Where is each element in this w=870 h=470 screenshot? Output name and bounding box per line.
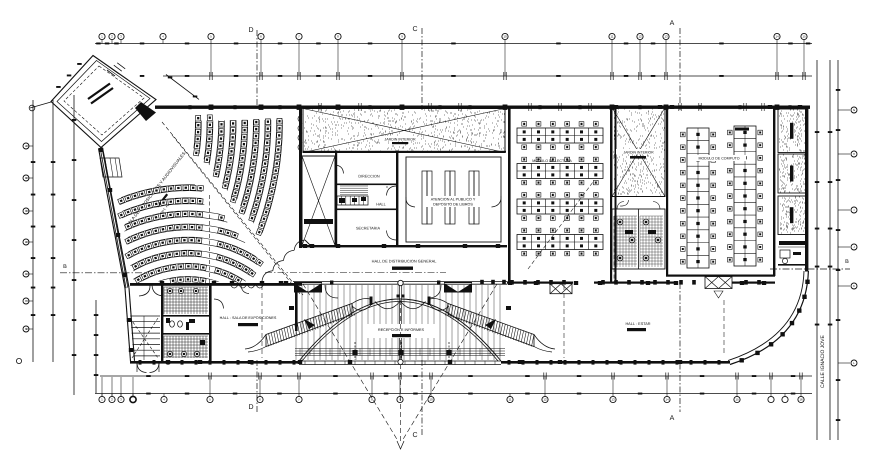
svg-text:JARDIN INTERIOR: JARDIN INTERIOR <box>384 138 416 142</box>
svg-text:16: 16 <box>799 398 803 402</box>
svg-text:A: A <box>25 144 27 148</box>
svg-text:DIRECCION: DIRECCION <box>358 175 380 179</box>
svg-text:11: 11 <box>610 35 613 39</box>
svg-text:RECEPCION E INFORMES: RECEPCION E INFORMES <box>378 328 424 332</box>
svg-text:14: 14 <box>665 398 669 402</box>
svg-text:DEPOSITO DE LIBROS: DEPOSITO DE LIBROS <box>433 203 473 207</box>
svg-text:HALL - ESTAR: HALL - ESTAR <box>625 322 650 326</box>
svg-text:D: D <box>248 27 253 34</box>
svg-text:HALL DE DISTRIBUCION GENERAL: HALL DE DISTRIBUCION GENERAL <box>372 259 438 264</box>
svg-text:CALLE IGNACIO JOVE: CALLE IGNACIO JOVE <box>820 335 826 388</box>
svg-text:C: C <box>412 432 417 439</box>
svg-text:15: 15 <box>735 398 739 402</box>
svg-text:13: 13 <box>611 398 615 402</box>
svg-text:B: B <box>25 176 27 180</box>
svg-text:ATENCION AL PUBLICO Y: ATENCION AL PUBLICO Y <box>431 198 476 202</box>
svg-text:14: 14 <box>775 35 779 39</box>
svg-text:K: K <box>853 284 855 288</box>
svg-text:HALL: HALL <box>376 203 386 207</box>
svg-text:10: 10 <box>503 35 507 39</box>
svg-text:15: 15 <box>802 35 806 39</box>
svg-text:12: 12 <box>638 35 642 39</box>
svg-text:12: 12 <box>543 398 547 402</box>
svg-text:MODULO DE LECTURA: MODULO DE LECTURA <box>532 159 572 163</box>
svg-text:HALL - SALA DE EXPOSICIONES: HALL - SALA DE EXPOSICIONES <box>220 316 277 320</box>
svg-text:A: A <box>670 415 675 422</box>
svg-text:C: C <box>412 26 417 33</box>
svg-text:D: D <box>248 404 253 411</box>
svg-text:H: H <box>853 152 855 156</box>
svg-text:JARDIN INTERIOR: JARDIN INTERIOR <box>623 151 654 155</box>
svg-text:E: E <box>25 272 27 276</box>
svg-text:11: 11 <box>508 398 511 402</box>
svg-text:SECRETARIA: SECRETARIA <box>356 227 380 231</box>
svg-text:A: A <box>670 20 675 27</box>
svg-text:10: 10 <box>429 398 433 402</box>
svg-text:13: 13 <box>664 35 668 39</box>
svg-text:F: F <box>25 299 27 303</box>
svg-text:MODULO DE COMPUTO: MODULO DE COMPUTO <box>698 157 739 161</box>
svg-text:B: B <box>63 264 67 270</box>
svg-text:B: B <box>845 259 849 265</box>
